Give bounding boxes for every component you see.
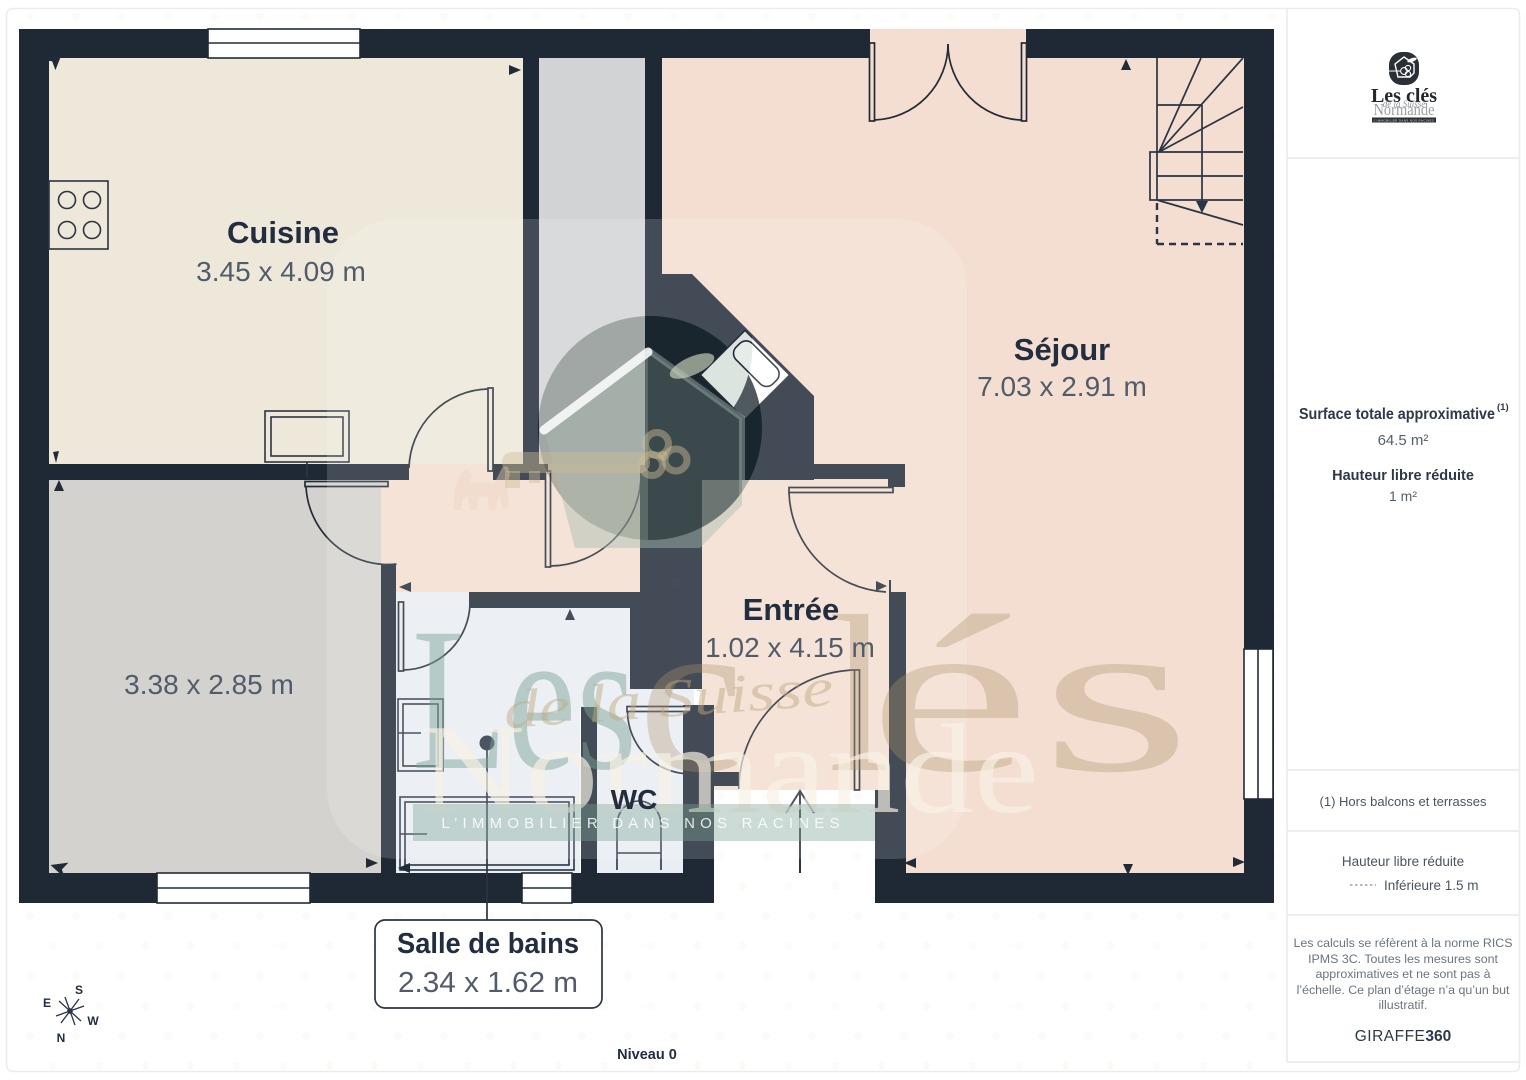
svg-text:approximatives et ne sont pas: approximatives et ne sont pas à [1316,967,1491,981]
svg-text:3.45 x 4.09 m: 3.45 x 4.09 m [196,256,366,287]
svg-text:7.03 x 2.91 m: 7.03 x 2.91 m [977,371,1147,402]
svg-text:Les calculs se réfèrent à la n: Les calculs se réfèrent à la norme RICS [1294,936,1513,950]
svg-text:IPMS 3C. Toutes les mesures so: IPMS 3C. Toutes les mesures sont [1308,952,1498,966]
svg-text:s: s [1040,569,1192,819]
svg-text:S: S [75,983,83,997]
svg-text:Hauteur libre réduite: Hauteur libre réduite [1342,854,1464,869]
svg-text:Normande: Normande [1374,100,1435,119]
svg-text:L’IMMOBILIER DANS NOS RACINES: L’IMMOBILIER DANS NOS RACINES [441,815,844,832]
svg-text:N: N [57,1031,66,1045]
svg-text:E: E [43,996,51,1010]
svg-text:64.5 m²: 64.5 m² [1378,432,1429,449]
svg-text:3.38 x 2.85 m: 3.38 x 2.85 m [124,669,294,700]
svg-text:Entrée: Entrée [743,592,839,627]
svg-text:l’échelle. Ce plan d’étage n’a: l’échelle. Ce plan d’étage n’a qu’un but [1297,983,1510,997]
svg-text:Cuisine: Cuisine [227,215,339,250]
svg-text:(1) Hors balcons et terrasses: (1) Hors balcons et terrasses [1320,794,1487,809]
svg-text:1 m²: 1 m² [1389,488,1417,504]
svg-text:Séjour: Séjour [1014,332,1110,367]
svg-text:Hauteur libre réduite: Hauteur libre réduite [1332,468,1474,484]
svg-text:(1): (1) [1497,402,1509,413]
svg-text:Surface totale approximative: Surface totale approximative [1299,406,1495,423]
svg-text:W: W [87,1014,99,1028]
svg-text:Inférieure 1.5 m: Inférieure 1.5 m [1384,878,1479,893]
svg-text:Salle de bains: Salle de bains [397,928,579,960]
svg-text:GIRAFFE360: GIRAFFE360 [1355,1028,1452,1045]
svg-text:1.02 x 4.15 m: 1.02 x 4.15 m [705,632,875,663]
svg-text:L’IMMOBILIER DANS NOS RACINES: L’IMMOBILIER DANS NOS RACINES [1374,118,1435,122]
svg-text:WC: WC [611,784,658,815]
svg-text:Niveau 0: Niveau 0 [617,1047,677,1063]
svg-text:illustratif.: illustratif. [1379,998,1428,1012]
svg-text:2.34 x 1.62 m: 2.34 x 1.62 m [398,967,578,999]
